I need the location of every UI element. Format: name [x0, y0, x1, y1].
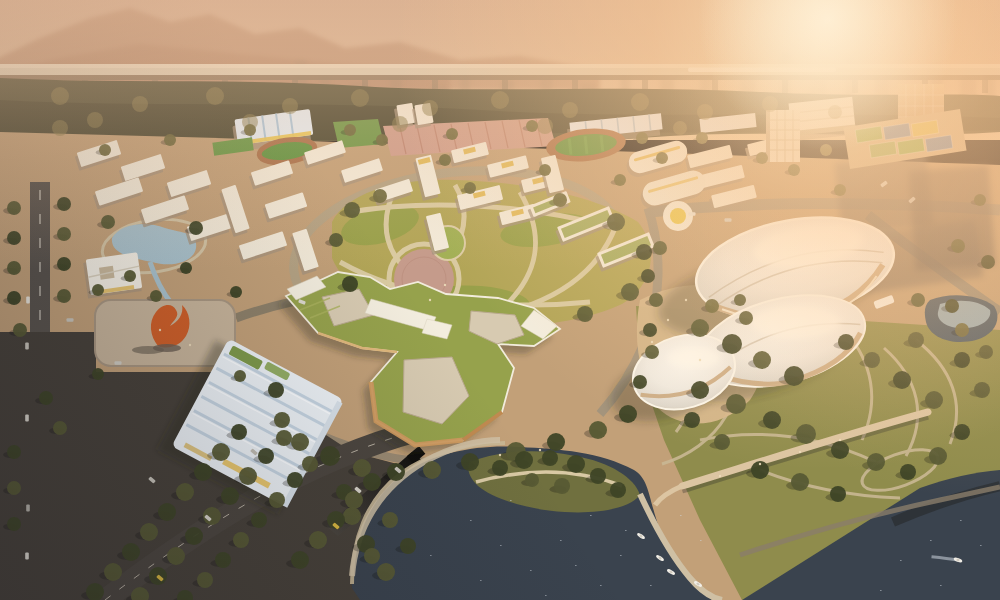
- aerial-render-viewport: [0, 0, 1000, 600]
- atmosphere: [0, 0, 1000, 600]
- aerial-render: [0, 0, 1000, 600]
- right-warm-wash: [0, 0, 1000, 600]
